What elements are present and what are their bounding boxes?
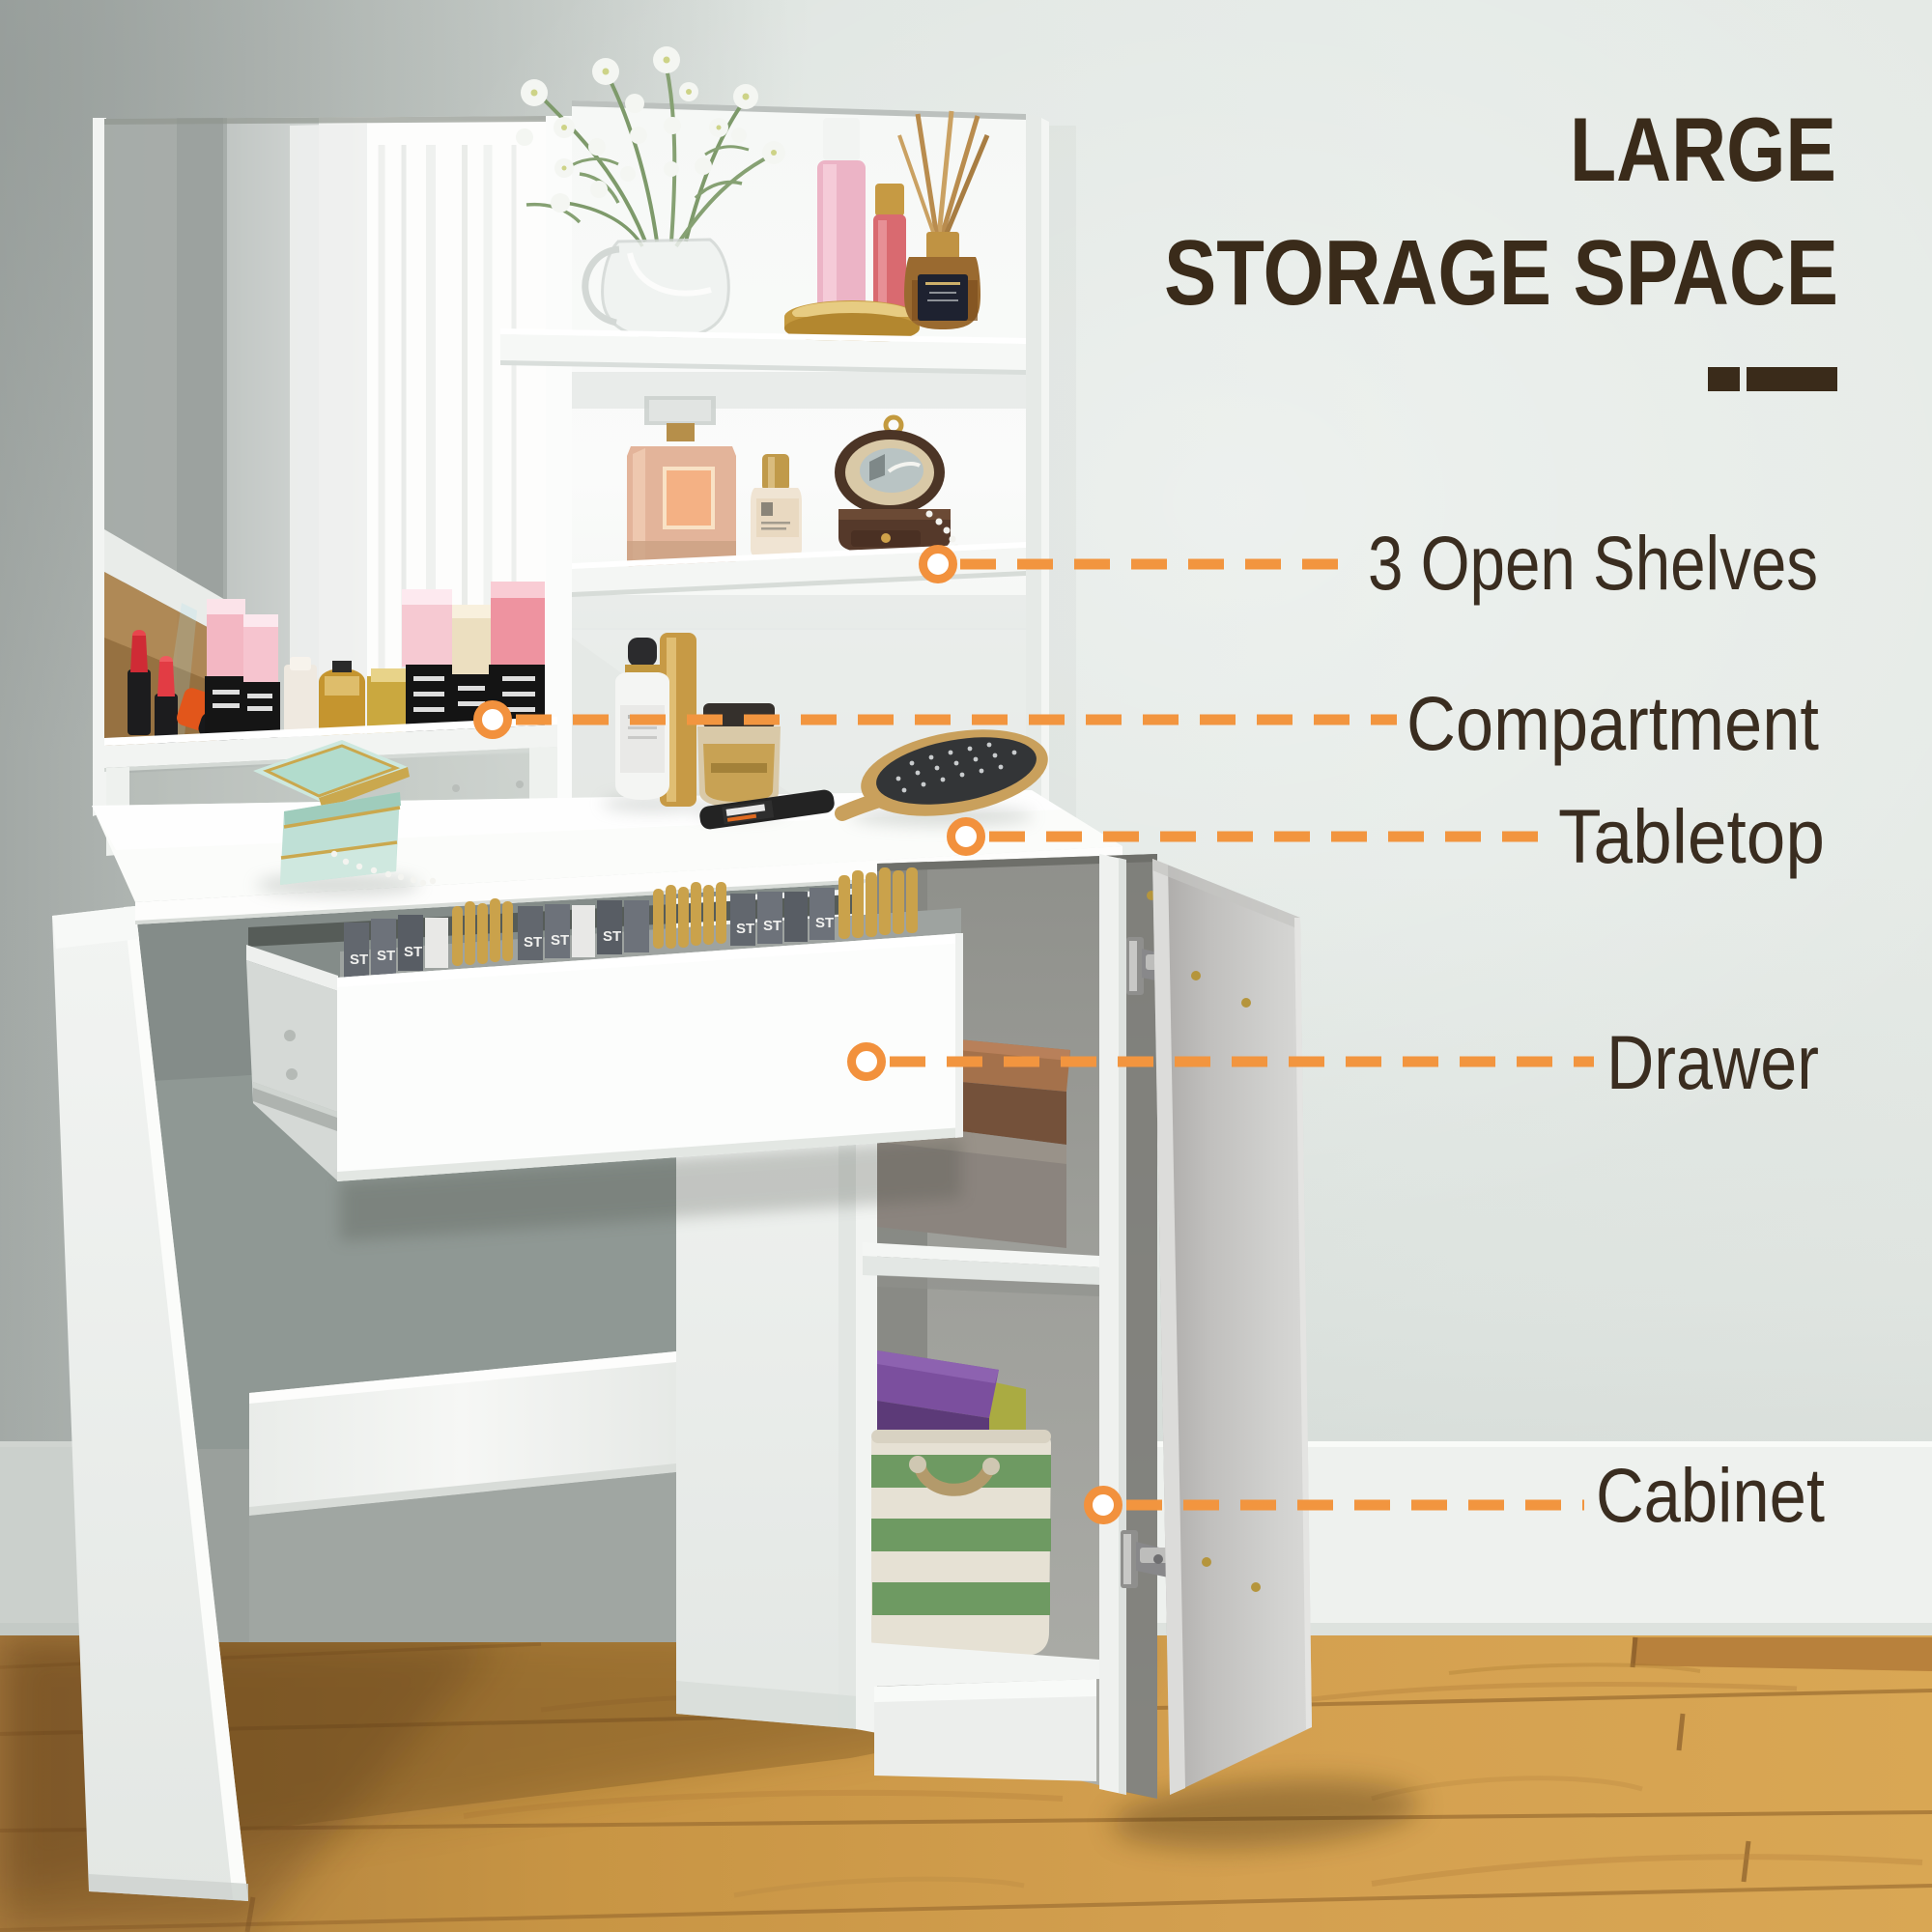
svg-text:Compartment: Compartment <box>1406 680 1819 766</box>
svg-text:ST: ST <box>377 948 395 964</box>
svg-text:STORAGE SPACE: STORAGE SPACE <box>1164 221 1838 325</box>
svg-text:ST: ST <box>763 918 781 934</box>
svg-text:ST: ST <box>524 934 542 951</box>
svg-text:Drawer: Drawer <box>1606 1019 1819 1105</box>
svg-text:Tabletop: Tabletop <box>1558 793 1825 879</box>
svg-text:ST: ST <box>736 921 754 937</box>
svg-text:Cabinet: Cabinet <box>1596 1452 1825 1538</box>
svg-text:LARGE: LARGE <box>1570 99 1836 200</box>
svg-text:ST: ST <box>815 915 834 931</box>
svg-text:ST: ST <box>350 952 368 968</box>
svg-text:3 Open Shelves: 3 Open Shelves <box>1368 520 1818 606</box>
svg-text:ST: ST <box>603 928 621 945</box>
svg-text:ST: ST <box>551 932 569 949</box>
svg-text:ST: ST <box>404 944 422 960</box>
